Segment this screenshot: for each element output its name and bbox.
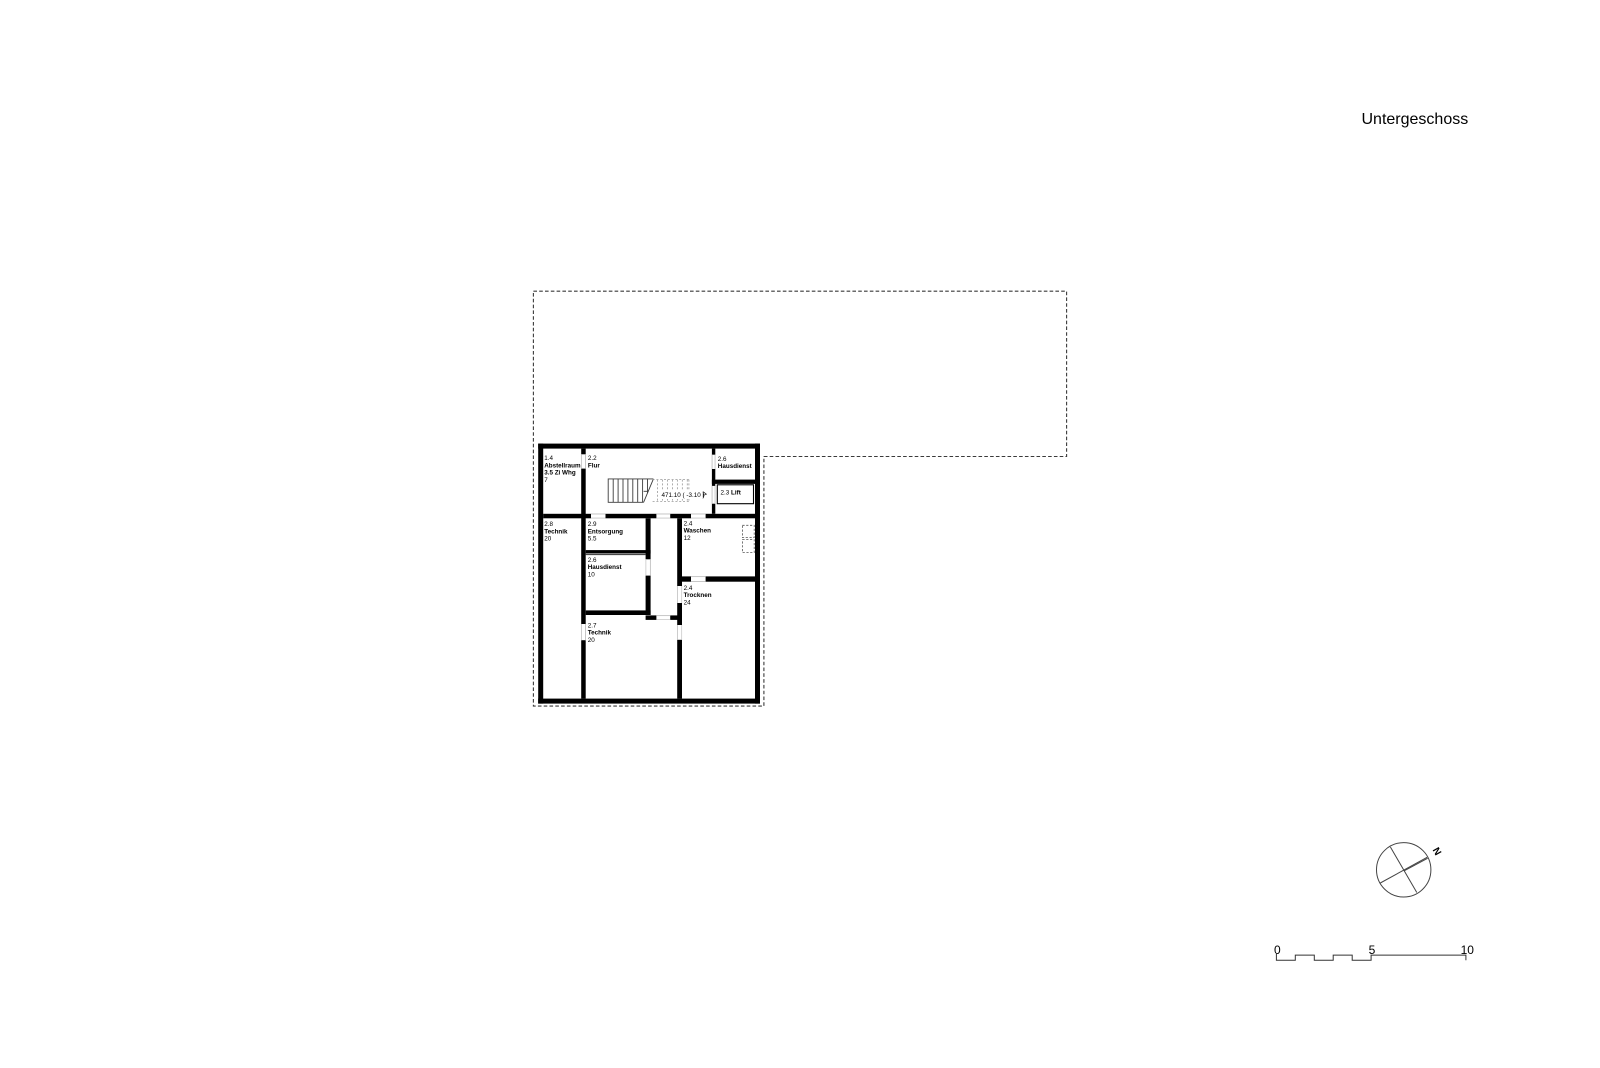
svg-text:Trocknen: Trocknen [684,592,712,599]
svg-text:10: 10 [588,571,596,578]
svg-text:0: 0 [1274,943,1281,957]
svg-text:20: 20 [588,637,596,644]
svg-text:471.10 ( -3.10 ): 471.10 ( -3.10 ) [662,492,705,499]
svg-text:5.5: 5.5 [588,536,597,543]
svg-text:Abstellraum: Abstellraum [544,462,581,469]
svg-text:Hausdienst: Hausdienst [718,463,753,470]
svg-text:12: 12 [684,535,692,542]
svg-text:20: 20 [544,536,552,543]
svg-text:2.6: 2.6 [718,456,727,463]
svg-text:2.7: 2.7 [588,623,597,630]
svg-text:2.4: 2.4 [684,585,693,592]
svg-text:Technik: Technik [588,630,612,637]
svg-text:Hausdienst: Hausdienst [588,564,623,571]
svg-text:Flur: Flur [588,462,600,469]
svg-text:Entsorgung: Entsorgung [588,528,623,535]
svg-text:N: N [1430,846,1443,858]
svg-text:2.3 Lift: 2.3 Lift [721,489,742,496]
svg-text:10: 10 [1461,943,1475,957]
svg-text:1.4: 1.4 [544,455,553,462]
svg-text:2.8: 2.8 [544,521,553,528]
svg-text:Technik: Technik [544,528,568,535]
svg-text:7: 7 [544,477,548,484]
svg-text:2.4: 2.4 [684,521,693,528]
svg-text:Untergeschoss: Untergeschoss [1362,111,1469,128]
svg-text:2.9: 2.9 [588,521,597,528]
svg-text:Waschen: Waschen [684,528,712,535]
svg-text:24: 24 [684,599,692,606]
svg-text:2.2: 2.2 [588,455,597,462]
svg-text:3.5 Zi Whg: 3.5 Zi Whg [544,470,576,477]
svg-text:2.6: 2.6 [588,557,597,564]
svg-text:5: 5 [1369,943,1376,957]
